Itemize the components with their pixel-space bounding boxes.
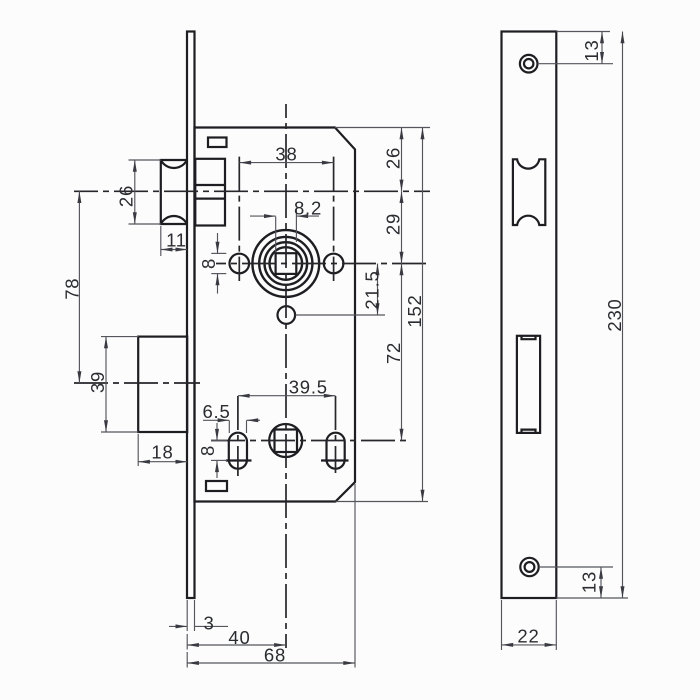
svg-text:13: 13 <box>579 571 600 593</box>
svg-text:72: 72 <box>383 342 404 364</box>
svg-text:26: 26 <box>116 185 137 207</box>
svg-text:230: 230 <box>604 298 625 331</box>
svg-text:18: 18 <box>151 442 173 463</box>
svg-text:8: 8 <box>198 258 219 269</box>
svg-text:68: 68 <box>264 645 286 666</box>
svg-text:39: 39 <box>87 371 108 393</box>
svg-text:8: 8 <box>197 445 218 456</box>
svg-text:29: 29 <box>383 213 404 235</box>
svg-text:152: 152 <box>404 294 425 327</box>
svg-text:13: 13 <box>581 39 602 61</box>
svg-text:26: 26 <box>383 147 404 169</box>
svg-text:6.5: 6.5 <box>202 401 230 422</box>
svg-text:38: 38 <box>275 144 297 165</box>
svg-text:8.2: 8.2 <box>294 198 322 219</box>
svg-text:11: 11 <box>166 230 187 251</box>
svg-text:3: 3 <box>203 613 214 634</box>
svg-text:40: 40 <box>228 627 250 648</box>
svg-text:22: 22 <box>517 626 539 647</box>
svg-text:21.5: 21.5 <box>362 270 383 309</box>
svg-text:78: 78 <box>62 278 83 300</box>
svg-text:39.5: 39.5 <box>289 377 328 398</box>
